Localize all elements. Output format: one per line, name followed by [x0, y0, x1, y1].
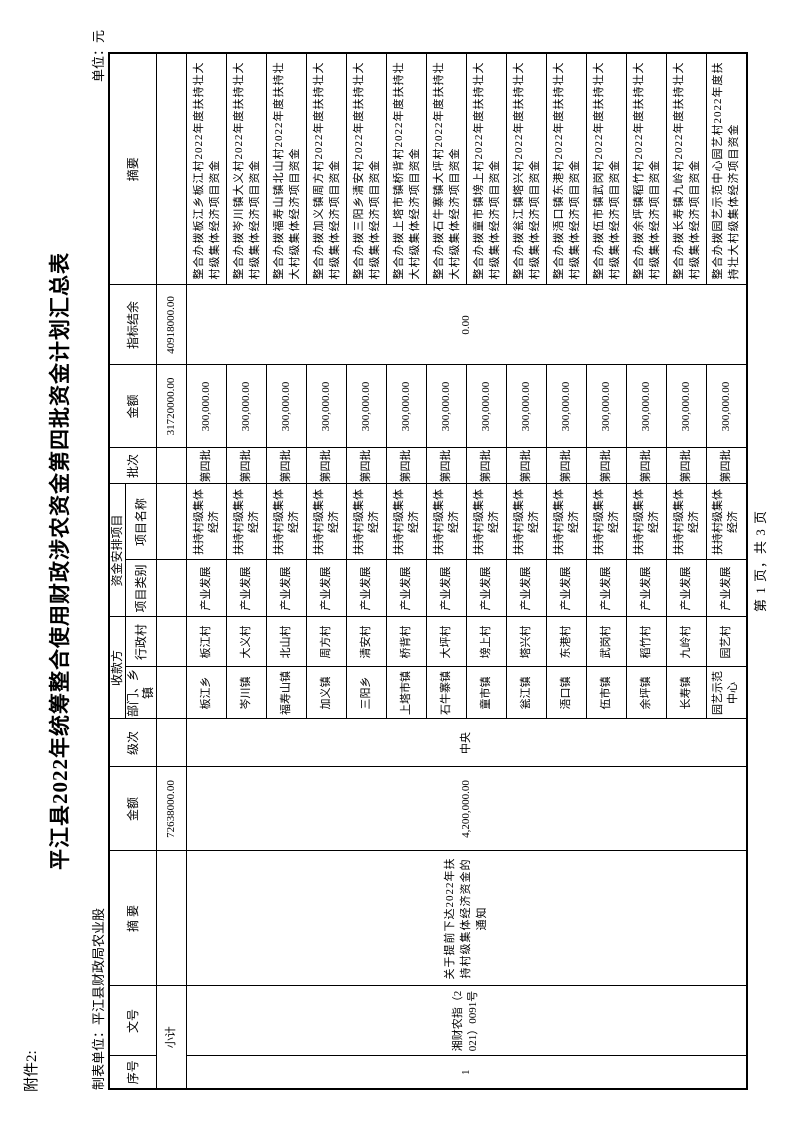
cell-amount: 300,000.00: [387, 365, 427, 448]
cell-batch: 第四批: [267, 448, 307, 484]
footer-page-number: 第 1 页，共 3 页: [750, 0, 769, 1122]
cell-category: 产业发展: [267, 560, 307, 617]
cell-village: 北山村: [267, 617, 307, 667]
cell-village: 稻竹村: [627, 617, 667, 667]
header-payee-village: 行政村: [126, 617, 157, 667]
header-amount-source: 金额: [109, 767, 157, 851]
cell-dept: 浯口镇: [547, 667, 587, 719]
cell-amount: 300,000.00: [307, 365, 347, 448]
cell-dept: 园艺示范中心: [707, 667, 747, 719]
cell-remark: 整合办拨石牛寨镇大坪村2022年度扶持壮大村级集体经济项目资金: [427, 53, 467, 285]
cell-category: 产业发展: [547, 560, 587, 617]
group-seq: 1: [187, 1056, 747, 1089]
cell-dept: 童市镇: [467, 667, 507, 719]
group-amount: 4,200,000.00: [187, 767, 747, 851]
subtotal-empty-batch: [157, 448, 187, 484]
cell-village: 东港村: [547, 617, 587, 667]
subtotal-amount-source: 72638000.00: [157, 767, 187, 851]
cell-village: 桥背村: [387, 617, 427, 667]
group-level: 中央: [187, 719, 747, 767]
header-balance: 指标结余: [109, 285, 157, 365]
cell-remark: 整合办拨余坪镇稻竹村2022年度扶持壮大村级集体经济项目资金: [627, 53, 667, 285]
cell-dept: 三阳乡: [347, 667, 387, 719]
cell-batch: 第四批: [507, 448, 547, 484]
subtotal-row: 小计 72638000.00 31720000.00 40918000.00: [157, 53, 187, 1089]
cell-project: 扶持村级集体经济: [267, 484, 307, 560]
cell-remark: 整合办拨福寿山镇北山村2022年度扶持壮大村级集体经济项目资金: [267, 53, 307, 285]
unit-label: 单位：元: [88, 30, 107, 82]
header-project-group: 资金安排项目: [109, 484, 126, 617]
cell-amount: 300,000.00: [507, 365, 547, 448]
cell-project: 扶持村级集体经济: [627, 484, 667, 560]
cell-project: 扶持村级集体经济: [707, 484, 747, 560]
header-project-name: 项目名称: [126, 484, 157, 560]
cell-village: 板江村: [187, 617, 227, 667]
table-header: 序号 文号 摘 要 金额 级次 收款方 资金安排项目 批次 金额 指标结余 摘要…: [109, 53, 157, 1089]
cell-batch: 第四批: [587, 448, 627, 484]
header-level: 级次: [109, 719, 157, 767]
cell-village: 大义村: [227, 617, 267, 667]
subtotal-empty-project: [157, 484, 187, 560]
cell-remark: 整合办拨浯口镇东港村2022年度扶持壮大村级集体经济项目资金: [547, 53, 587, 285]
cell-village: 大坪村: [427, 617, 467, 667]
cell-category: 产业发展: [187, 560, 227, 617]
cell-dept: 上塔市镇: [387, 667, 427, 719]
cell-village: 周方村: [307, 617, 347, 667]
cell-remark: 整合办拨童市镇塝上村2022年度扶持壮大村级集体经济项目资金: [467, 53, 507, 285]
cell-dept: 加义镇: [307, 667, 347, 719]
cell-remark: 整合办拨上塔市镇桥背村2022年度扶持壮大村级集体经济项目资金: [387, 53, 427, 285]
group-remark: 关于提前下达2022年扶持村级集体经济资金的通知: [187, 851, 747, 986]
cell-category: 产业发展: [227, 560, 267, 617]
cell-amount: 300,000.00: [227, 365, 267, 448]
cell-village: 九岭村: [667, 617, 707, 667]
cell-batch: 第四批: [227, 448, 267, 484]
group-balance: 0.00: [187, 285, 747, 365]
cell-amount: 300,000.00: [347, 365, 387, 448]
header-batch: 批次: [109, 448, 157, 484]
cell-project: 扶持村级集体经济: [347, 484, 387, 560]
cell-project: 扶持村级集体经济: [547, 484, 587, 560]
cell-remark: 整合办拨园艺示范中心园艺村2022年度扶持壮大村级集体经济项目资金: [707, 53, 747, 285]
rotated-sheet: 附件2: 平江县2022年统筹整合使用财政涉农资金第四批资金计划汇总表 制表单位…: [0, 0, 793, 1122]
cell-remark: 整合办拨加义镇周方村2022年度扶持壮大村级集体经济项目资金: [307, 53, 347, 285]
cell-category: 产业发展: [667, 560, 707, 617]
maker-unit-label: 制表单位：平江县财政局农业股: [88, 908, 107, 1090]
cell-batch: 第四批: [307, 448, 347, 484]
attachment-label: 附件2:: [20, 1050, 41, 1092]
header-doc-no: 文号: [109, 986, 157, 1056]
summary-table: 序号 文号 摘 要 金额 级次 收款方 资金安排项目 批次 金额 指标结余 摘要…: [108, 52, 748, 1090]
cell-project: 扶持村级集体经济: [507, 484, 547, 560]
header-remark-detail: 摘要: [109, 53, 157, 285]
cell-village: 武岗村: [587, 617, 627, 667]
table-body: 小计 72638000.00 31720000.00 40918000.00 1…: [157, 53, 747, 1089]
cell-batch: 第四批: [347, 448, 387, 484]
cell-remark: 整合办拨长寿镇九岭村2022年度扶持壮大村级集体经济项目资金: [667, 53, 707, 285]
cell-project: 扶持村级集体经济: [187, 484, 227, 560]
subtotal-remark-empty: [157, 851, 187, 986]
header-payee-group: 收款方: [109, 617, 126, 719]
cell-project: 扶持村级集体经济: [467, 484, 507, 560]
cell-remark: 整合办拨瓮江镇塔兴村2022年度扶持壮大村级集体经济项目资金: [507, 53, 547, 285]
cell-batch: 第四批: [707, 448, 747, 484]
cell-village: 塔兴村: [507, 617, 547, 667]
cell-dept: 伍市镇: [587, 667, 627, 719]
cell-dept: 余坪镇: [627, 667, 667, 719]
subtotal-amount-arranged: 31720000.00: [157, 365, 187, 448]
subline: 制表单位：平江县财政局农业股 单位：元: [88, 30, 107, 1090]
subtotal-empty-village: [157, 617, 187, 667]
cell-project: 扶持村级集体经济: [227, 484, 267, 560]
cell-village: 园艺村: [707, 617, 747, 667]
cell-category: 产业发展: [507, 560, 547, 617]
cell-category: 产业发展: [427, 560, 467, 617]
cell-amount: 300,000.00: [467, 365, 507, 448]
cell-batch: 第四批: [427, 448, 467, 484]
cell-dept: 长寿镇: [667, 667, 707, 719]
cell-amount: 300,000.00: [707, 365, 747, 448]
cell-batch: 第四批: [627, 448, 667, 484]
cell-village: 塝上村: [467, 617, 507, 667]
header-project-category: 项目类别: [126, 560, 157, 617]
cell-batch: 第四批: [467, 448, 507, 484]
header-seq: 序号: [109, 1056, 157, 1089]
group-doc-no: 湘财农指（2021）0091号: [187, 986, 747, 1056]
cell-amount: 300,000.00: [547, 365, 587, 448]
cell-amount: 300,000.00: [187, 365, 227, 448]
cell-village: 清安村: [347, 617, 387, 667]
cell-remark: 整合办拨三阳乡清安村2022年度扶持壮大村级集体经济项目资金: [347, 53, 387, 285]
cell-project: 扶持村级集体经济: [307, 484, 347, 560]
cell-dept: 岑川镇: [227, 667, 267, 719]
subtotal-label: 小计: [157, 986, 187, 1089]
cell-category: 产业发展: [587, 560, 627, 617]
cell-project: 扶持村级集体经济: [587, 484, 627, 560]
subtotal-empty-level: [157, 719, 187, 767]
cell-category: 产业发展: [387, 560, 427, 617]
cell-dept: 瓮江镇: [507, 667, 547, 719]
page-title: 平江县2022年统筹整合使用财政涉农资金第四批资金计划汇总表: [44, 0, 74, 1122]
cell-amount: 300,000.00: [267, 365, 307, 448]
cell-batch: 第四批: [387, 448, 427, 484]
cell-amount: 300,000.00: [427, 365, 467, 448]
cell-project: 扶持村级集体经济: [387, 484, 427, 560]
subtotal-empty-remark: [157, 53, 187, 285]
header-amount-arranged: 金额: [109, 365, 157, 448]
cell-project: 扶持村级集体经济: [427, 484, 467, 560]
cell-category: 产业发展: [627, 560, 667, 617]
cell-dept: 板江乡: [187, 667, 227, 719]
cell-category: 产业发展: [307, 560, 347, 617]
table-row: 1 湘财农指（2021）0091号 关于提前下达2022年扶持村级集体经济资金的…: [187, 53, 227, 1089]
subtotal-balance: 40918000.00: [157, 285, 187, 365]
cell-batch: 第四批: [187, 448, 227, 484]
cell-dept: 石牛寨镇: [427, 667, 467, 719]
cell-project: 扶持村级集体经济: [667, 484, 707, 560]
cell-amount: 300,000.00: [587, 365, 627, 448]
cell-dept: 福寿山镇: [267, 667, 307, 719]
cell-remark: 整合办拨板江乡板江村2022年度扶持壮大村级集体经济项目资金: [187, 53, 227, 285]
cell-category: 产业发展: [467, 560, 507, 617]
cell-amount: 300,000.00: [667, 365, 707, 448]
cell-remark: 整合办拨岑川镇大义村2022年度扶持壮大村级集体经济项目资金: [227, 53, 267, 285]
header-payee-dept: 部门、乡镇: [126, 667, 157, 719]
cell-category: 产业发展: [347, 560, 387, 617]
cell-category: 产业发展: [707, 560, 747, 617]
header-remark-source: 摘 要: [109, 851, 157, 986]
subtotal-empty-dept: [157, 667, 187, 719]
cell-batch: 第四批: [547, 448, 587, 484]
cell-remark: 整合办拨伍市镇武岗村2022年度扶持壮大村级集体经济项目资金: [587, 53, 627, 285]
cell-amount: 300,000.00: [627, 365, 667, 448]
subtotal-empty-category: [157, 560, 187, 617]
cell-batch: 第四批: [667, 448, 707, 484]
